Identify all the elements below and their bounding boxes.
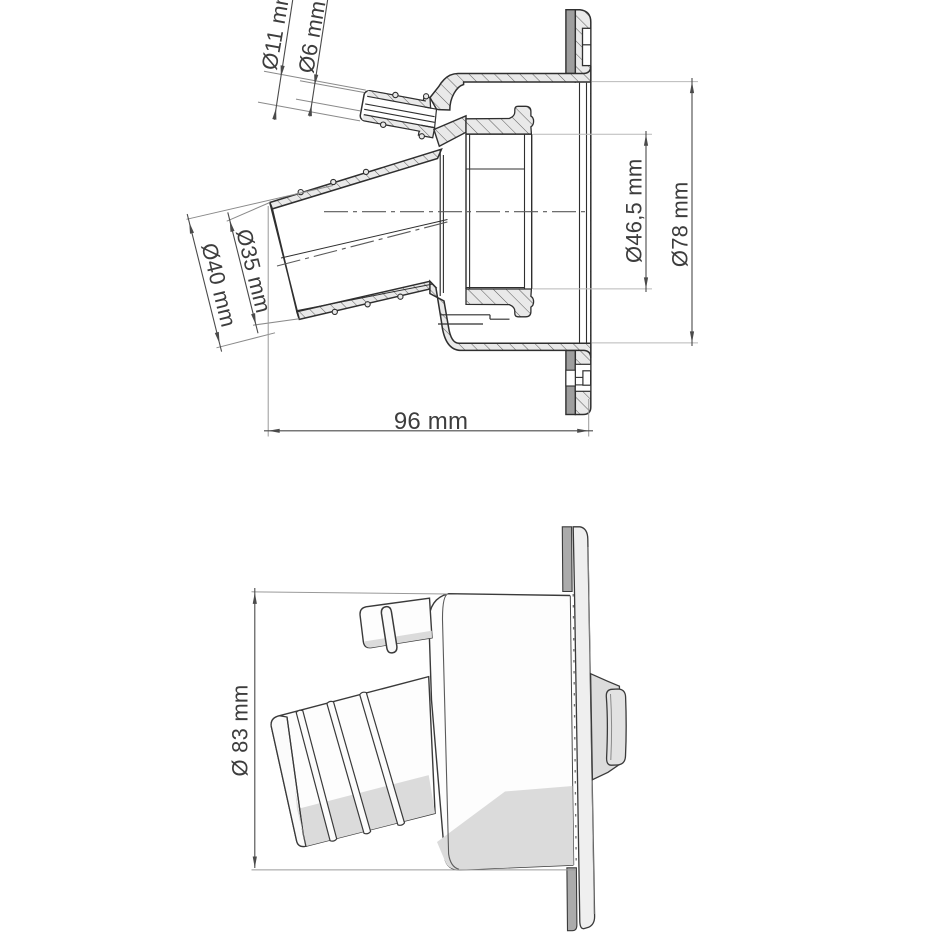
svg-text:Ø 83 mm: Ø 83 mm bbox=[228, 685, 253, 777]
svg-text:Ø78 mm: Ø78 mm bbox=[668, 182, 693, 268]
svg-text:Ø46,5 mm: Ø46,5 mm bbox=[622, 159, 647, 263]
svg-text:96 mm: 96 mm bbox=[394, 408, 468, 435]
